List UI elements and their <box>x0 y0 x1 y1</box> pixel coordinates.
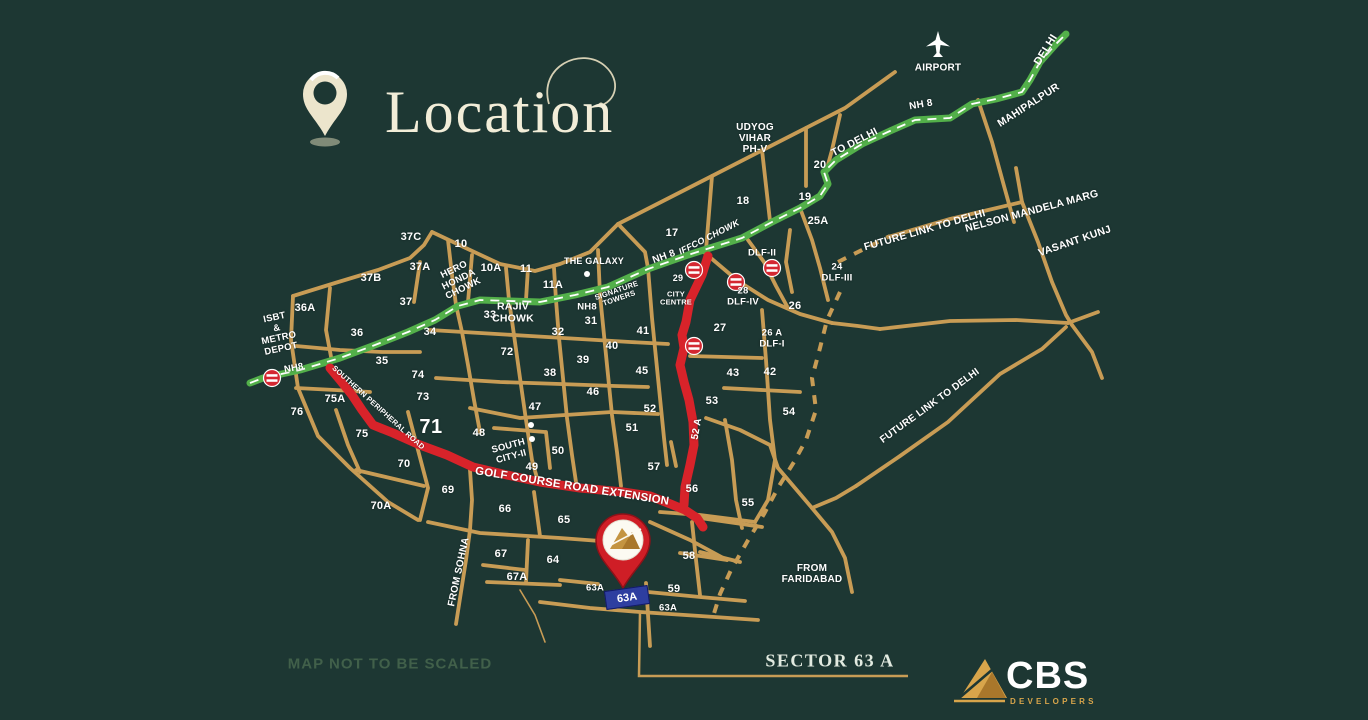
map-label: THE GALAXY <box>564 256 624 266</box>
map-label: 51 <box>626 422 639 434</box>
map-label: DLF-II <box>748 249 776 260</box>
map-label: FROM FARIDABAD <box>782 563 843 585</box>
map-label: 76 <box>291 406 304 418</box>
map-label: 59 <box>668 583 681 595</box>
map-label: 11 <box>520 263 532 275</box>
map-label: NH 8 <box>908 97 933 112</box>
map-label: 66 <box>499 503 512 515</box>
cbs-logo-text: CBS <box>1006 655 1089 698</box>
map-label: 47 <box>529 401 542 413</box>
map-label: HERO HONDA CHOWK <box>435 257 483 302</box>
map-label: 75 <box>356 428 369 440</box>
map-label: FROM SOHNA <box>446 536 472 607</box>
map-label: 67 <box>495 548 508 560</box>
map-label: 31 <box>585 315 598 327</box>
map-label: 38 <box>544 367 557 379</box>
map-label: 67A <box>507 571 528 583</box>
label-layer: AIRPORTDELHINH 8MAHIPALPURTO DELHIUDYOG … <box>0 0 1368 720</box>
map-label: 10 <box>455 238 468 250</box>
map-label: 70A <box>371 500 392 512</box>
map-label: 69 <box>442 484 455 496</box>
map-label: 58 <box>683 550 696 562</box>
map-label: 29 <box>673 273 683 283</box>
map-label: 42 <box>764 366 777 378</box>
map-label: 63A <box>659 604 677 615</box>
map-label: DELHI <box>1032 32 1060 67</box>
map-label: 64 <box>547 554 560 566</box>
map-label: NH8 <box>283 362 304 376</box>
map-label: 48 <box>473 427 486 439</box>
map-disclaimer: MAP NOT TO BE SCALED <box>288 656 492 673</box>
map-label: 37A <box>410 261 431 273</box>
map-label: MAHIPALPUR <box>996 82 1062 131</box>
map-label: 25A <box>808 215 829 227</box>
map-label: SOUTHERN PERIPHERAL ROAD <box>330 364 426 451</box>
map-label: 10A <box>481 262 502 274</box>
map-label: 36A <box>295 302 316 314</box>
map-label: 52 A <box>690 417 705 440</box>
map-label: ISBT & METRO DEPOT <box>256 310 299 359</box>
map-label: FUTURE LINK TO DELHI <box>863 208 987 254</box>
map-label: NH8 <box>577 303 597 314</box>
map-label: CITY CENTRE <box>660 291 692 308</box>
map-label: 72 <box>501 346 514 358</box>
map-label: 55 <box>742 497 755 509</box>
location-map-page: Location AIRPORTDELHINH 8MAHIPALPURTO DE… <box>0 0 1368 720</box>
map-label: SIGNATURE TOWERS <box>594 280 642 311</box>
map-label: 37B <box>361 272 382 284</box>
map-label: RAJIV CHOWK <box>492 301 534 325</box>
map-label: UDYOG VIHAR PH-V <box>736 122 774 156</box>
map-label: 36 <box>351 327 364 339</box>
map-label: 33 <box>484 309 497 321</box>
map-label: 43 <box>727 367 740 379</box>
sector-callout-label: SECTOR 63 A <box>765 651 894 672</box>
map-label: SOUTH CITY-II <box>491 437 530 466</box>
map-label: 71 <box>419 416 442 438</box>
map-label: NH 8 <box>651 248 677 267</box>
map-label: 74 <box>412 369 425 381</box>
map-label: 32 <box>552 326 565 338</box>
map-label: 45 <box>636 365 649 377</box>
map-label: 40 <box>606 340 619 352</box>
map-label: NELSON MANDELA MARG <box>964 189 1100 236</box>
map-label: 37C <box>401 231 422 243</box>
map-label: 46 <box>587 386 600 398</box>
map-label: 27 <box>714 322 727 334</box>
map-label: 56 <box>686 483 699 495</box>
map-label: 19 <box>799 191 812 203</box>
map-label: 52 <box>644 403 657 415</box>
map-label: 41 <box>637 325 650 337</box>
map-label: GOLF COURSE ROAD EXTENSION <box>474 465 670 508</box>
map-label: 65 <box>558 514 571 526</box>
map-label: 73 <box>417 391 430 403</box>
map-label: 17 <box>666 227 679 239</box>
map-label: 20 <box>814 159 827 171</box>
map-label: 18 <box>737 195 750 207</box>
map-label: VASANT KUNJ <box>1037 224 1113 260</box>
map-label: IFFCO CHOWK <box>677 217 741 256</box>
map-label: 11A <box>543 279 563 291</box>
cbs-logo-subtext: DEVELOPERS <box>1010 697 1097 706</box>
map-label: 26 A DLF-I <box>759 328 784 349</box>
map-label: 53 <box>706 395 719 407</box>
map-label: 49 <box>526 461 539 473</box>
map-label: TO DELHI <box>830 126 880 159</box>
map-label: 50 <box>552 445 565 457</box>
map-label: 57 <box>648 461 661 473</box>
map-label: 24 DLF-III <box>822 262 853 283</box>
map-label: 39 <box>577 354 590 366</box>
map-label: 37 <box>400 296 413 308</box>
map-label: 26 <box>789 300 802 312</box>
map-label: AIRPORT <box>915 62 961 73</box>
map-label: 34 <box>424 326 437 338</box>
map-label: 28 DLF-IV <box>727 286 759 307</box>
map-label: 35 <box>376 355 389 367</box>
map-label: 54 <box>783 406 796 418</box>
map-label: 63A <box>586 584 604 595</box>
map-label: 75A <box>325 393 346 405</box>
map-label: FUTURE LINK TO DELHI <box>878 366 982 446</box>
map-label: 70 <box>398 458 411 470</box>
